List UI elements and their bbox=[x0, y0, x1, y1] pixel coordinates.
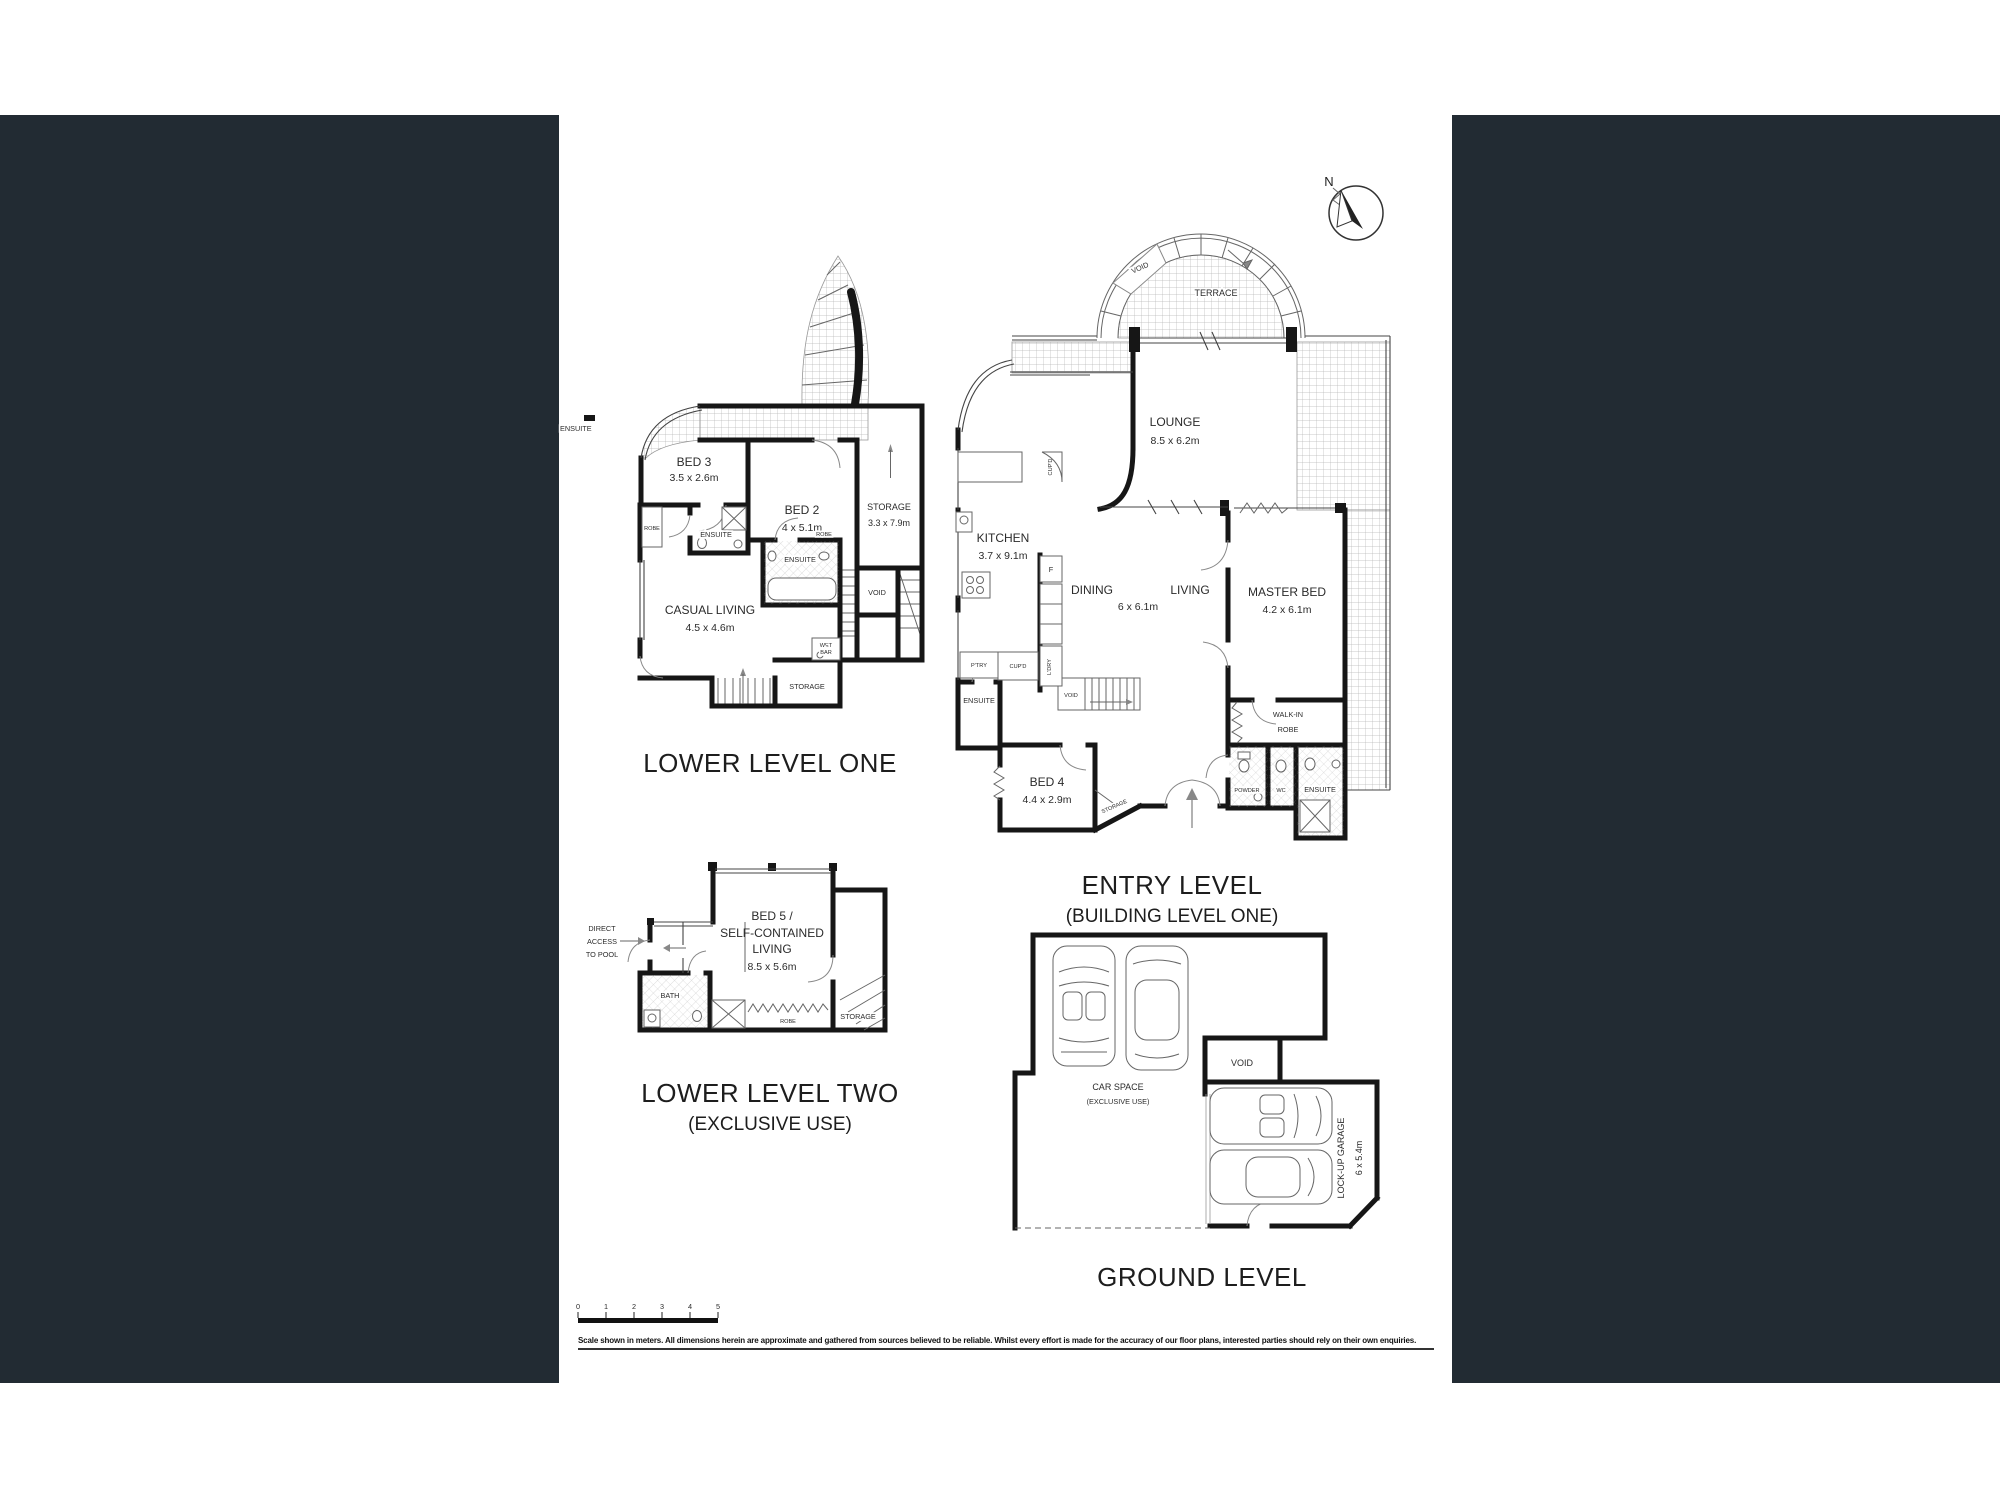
room-dims-kitchen: 3.7 x 9.1m bbox=[978, 550, 1027, 562]
level-title-lower-two: LOWER LEVEL TWO bbox=[641, 1078, 898, 1108]
room-label-void: VOID bbox=[1231, 1058, 1254, 1068]
room-label-bed5-3: LIVING bbox=[752, 942, 791, 956]
level-subtitle-lower-two: (EXCLUSIVE USE) bbox=[688, 1114, 852, 1135]
scale-tick-5: 5 bbox=[716, 1302, 720, 1311]
room-dims-bed4: 4.4 x 2.9m bbox=[1022, 794, 1071, 806]
room-label-bed5-1: BED 5 / bbox=[751, 909, 793, 923]
room-label-fridge: F bbox=[1049, 565, 1054, 574]
room-label-bed5-2: SELF-CONTAINED bbox=[720, 926, 824, 940]
scale-tick-2: 2 bbox=[632, 1302, 636, 1311]
label-to-pool: TO POOL bbox=[586, 950, 618, 959]
car-convertible-top bbox=[1053, 946, 1115, 1066]
plan-lower-level-one: BED 3 3.5 x 2.6m BED 2 4 x 5.1m STORAGE … bbox=[640, 256, 922, 778]
scale-tick-4: 4 bbox=[688, 1302, 692, 1311]
room-dims-lounge: 8.5 x 6.2m bbox=[1150, 435, 1199, 447]
plan-lower-level-two: DIRECT ACCESS TO POOL BED 5 / SELF-CONTA… bbox=[586, 862, 899, 1135]
room-label-bed3: BED 3 bbox=[677, 455, 712, 469]
room-label-dining: DINING bbox=[1071, 583, 1113, 597]
label-access: ACCESS bbox=[587, 937, 617, 946]
label-direct: DIRECT bbox=[588, 924, 616, 933]
level-title-entry: ENTRY LEVEL bbox=[1082, 870, 1263, 900]
room-dims-master-bed: 4.2 x 6.1m bbox=[1262, 604, 1311, 616]
scale-bar: 0 1 2 3 4 5 bbox=[576, 1302, 720, 1323]
room-label-ldry: L'DRY bbox=[1047, 659, 1053, 675]
scale-ticks bbox=[578, 1312, 718, 1318]
room-label-storage: STORAGE bbox=[867, 502, 911, 512]
room-label-wet: WET bbox=[820, 643, 833, 649]
room-label-bath: BATH bbox=[661, 991, 680, 1000]
level-title-lower-one: LOWER LEVEL ONE bbox=[643, 748, 897, 778]
room-label-storage2: STORAGE bbox=[789, 682, 825, 691]
compass: N bbox=[1324, 174, 1383, 240]
room-label-robe-b: ROBE bbox=[816, 532, 832, 538]
edge-wall-stub bbox=[584, 415, 595, 421]
stairs bbox=[840, 975, 885, 1030]
room-label-car-space-use: (EXCLUSIVE USE) bbox=[1087, 1097, 1150, 1106]
walls bbox=[640, 292, 922, 706]
room-label-walkin-1: WALK-IN bbox=[1273, 710, 1303, 719]
room-label-cupd1: CUP'D bbox=[1048, 459, 1054, 476]
plan-entry-level: VOID TERRACE LOUNGE 8.5 x 6.2m KITCHEN 3… bbox=[956, 234, 1390, 927]
scale-tick-0: 0 bbox=[576, 1302, 580, 1311]
room-label-ensuite-right: ENSUITE bbox=[1304, 785, 1336, 794]
room-label-wc: WC bbox=[1276, 788, 1285, 794]
cars bbox=[1053, 946, 1332, 1204]
windows bbox=[654, 869, 831, 973]
compass-n-label: N bbox=[1324, 174, 1333, 189]
room-label-cupd2: CUP'D bbox=[1010, 664, 1027, 670]
level-subtitle-entry: (BUILDING LEVEL ONE) bbox=[1066, 906, 1279, 927]
garage-entry-door bbox=[1247, 1201, 1272, 1226]
room-label-bar: BAR bbox=[820, 650, 832, 656]
room-label-living: LIVING bbox=[1170, 583, 1209, 597]
level-title-ground: GROUND LEVEL bbox=[1097, 1262, 1307, 1292]
car-convertible-garage bbox=[1210, 1088, 1332, 1144]
room-label-ensuite-b: ENSUITE bbox=[784, 555, 816, 564]
disclaimer-text: Scale shown in meters. All dimensions he… bbox=[578, 1336, 1434, 1350]
floorplan-page: BED 3 3.5 x 2.6m BED 2 4 x 5.1m STORAGE … bbox=[0, 0, 2000, 1500]
garage-door bbox=[1206, 1094, 1210, 1224]
scale-tick-3: 3 bbox=[660, 1302, 664, 1311]
room-label-ensuite-a: ENSUITE bbox=[700, 530, 732, 539]
kitchen-fixtures bbox=[956, 452, 1062, 686]
room-dims-casual-living: 4.5 x 4.6m bbox=[685, 622, 734, 634]
room-label-ensuite-left: ENSUITE bbox=[963, 696, 995, 705]
room-label-car-space: CAR SPACE bbox=[1092, 1082, 1143, 1092]
room-label-storage: STORAGE bbox=[840, 1012, 876, 1021]
bath-fixtures bbox=[1229, 702, 1344, 836]
room-label-walkin-2: ROBE bbox=[1278, 725, 1299, 734]
edge-ensuite: ENSUITE bbox=[560, 415, 595, 433]
plan-ground-level: CAR SPACE (EXCLUSIVE USE) VOID LOCK-UP G… bbox=[1015, 935, 1377, 1292]
room-label-garage: LOCK-UP GARAGE bbox=[1336, 1118, 1346, 1199]
room-label-powder: POWDER bbox=[1234, 788, 1259, 794]
floorplan-canvas: BED 3 3.5 x 2.6m BED 2 4 x 5.1m STORAGE … bbox=[0, 0, 2000, 1500]
room-label-robe: ROBE bbox=[780, 1019, 796, 1025]
room-label-bed2: BED 2 bbox=[785, 503, 820, 517]
room-label-ensuite-edge: ENSUITE bbox=[560, 424, 592, 433]
room-label-casual-living: CASUAL LIVING bbox=[665, 603, 755, 617]
room-label-lounge: LOUNGE bbox=[1150, 415, 1201, 429]
compass-circle bbox=[1329, 186, 1383, 240]
room-dims-bed3: 3.5 x 2.6m bbox=[669, 472, 718, 484]
room-label-bed4: BED 4 bbox=[1030, 775, 1065, 789]
scale-bar-rule bbox=[578, 1318, 718, 1323]
room-dims-dining-living: 6 x 6.1m bbox=[1118, 601, 1159, 613]
room-label-kitchen: KITCHEN bbox=[977, 531, 1030, 545]
hatch-areas bbox=[641, 256, 869, 458]
room-label-robe-a: ROBE bbox=[644, 526, 660, 532]
room-dims-bed5: 8.5 x 5.6m bbox=[747, 961, 796, 973]
car-coupe-garage bbox=[1210, 1150, 1332, 1204]
room-label-void: VOID bbox=[868, 588, 886, 597]
room-label-master-bed: MASTER BED bbox=[1248, 585, 1326, 599]
room-label-terrace: TERRACE bbox=[1194, 288, 1237, 298]
room-dims-garage: 6 x 5.4m bbox=[1354, 1141, 1364, 1176]
room-label-void-mid: VOID bbox=[1064, 693, 1078, 699]
room-dims-storage: 3.3 x 7.9m bbox=[868, 518, 910, 528]
scale-tick-1: 1 bbox=[604, 1302, 608, 1311]
car-sedan-top bbox=[1126, 946, 1188, 1070]
room-label-ptry: P'TRY bbox=[971, 663, 987, 669]
